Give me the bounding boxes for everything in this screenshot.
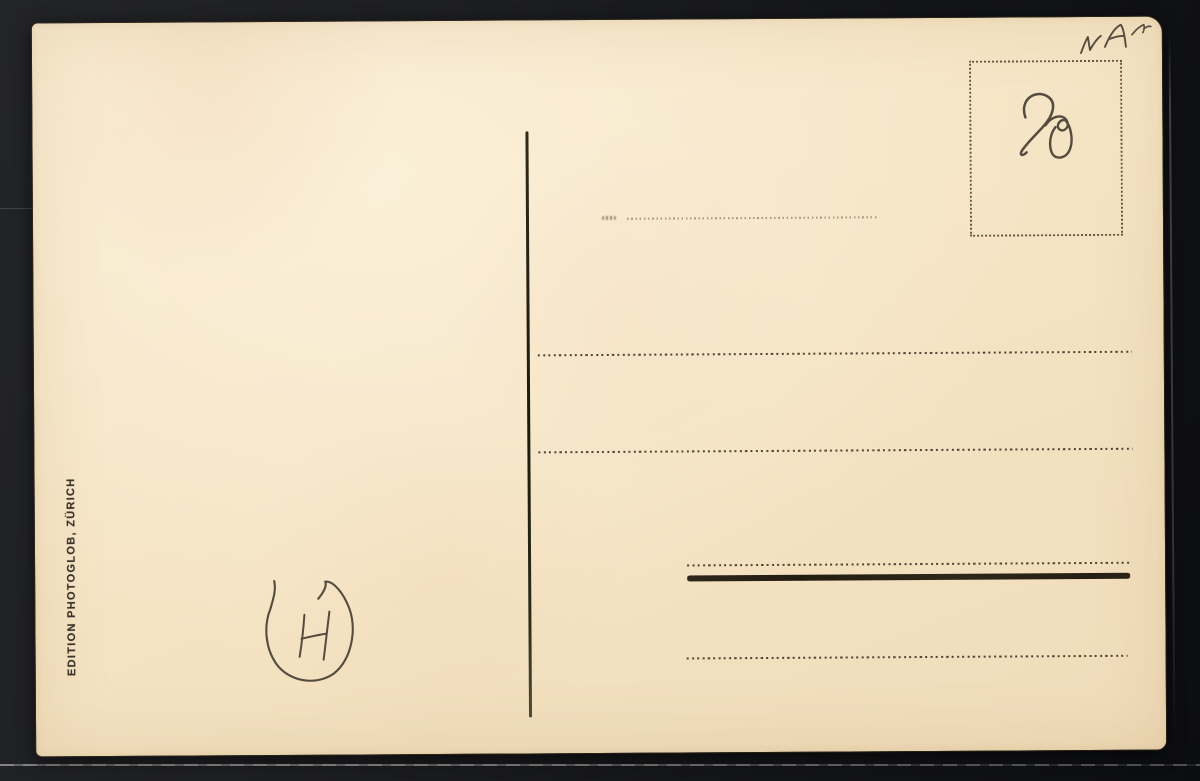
address-dotted-line-2 [538, 448, 1132, 454]
reference-dotted-line [627, 216, 877, 219]
address-dotted-line-3 [687, 562, 1130, 567]
center-divider-line [525, 131, 531, 717]
scan-background: EDITION PHOTOGLOB, ZÜRICH 20 NA [0, 0, 1200, 781]
scan-scratch-line [0, 208, 34, 209]
address-thick-rule [687, 573, 1130, 582]
svg-text:20: 20 [1012, 178, 1022, 187]
postcard-back: EDITION PHOTOGLOB, ZÜRICH 20 NA [32, 17, 1166, 757]
scan-bottom-edge-line [0, 764, 1200, 766]
address-dotted-line-1 [538, 351, 1132, 357]
scan-table-edge-line [1169, 34, 1176, 744]
publisher-imprint: EDITION PHOTOGLOB, ZÜRICH [65, 471, 81, 683]
svg-text:H: H [264, 680, 270, 689]
handwritten-20-annotation: 20 [1007, 89, 1118, 190]
handwritten-na-annotation: NA [1072, 17, 1162, 63]
reference-line-smudge [602, 216, 616, 220]
address-dotted-line-4 [687, 655, 1128, 660]
circled-h-annotation: H [259, 570, 380, 691]
svg-text:NA: NA [1076, 52, 1088, 61]
